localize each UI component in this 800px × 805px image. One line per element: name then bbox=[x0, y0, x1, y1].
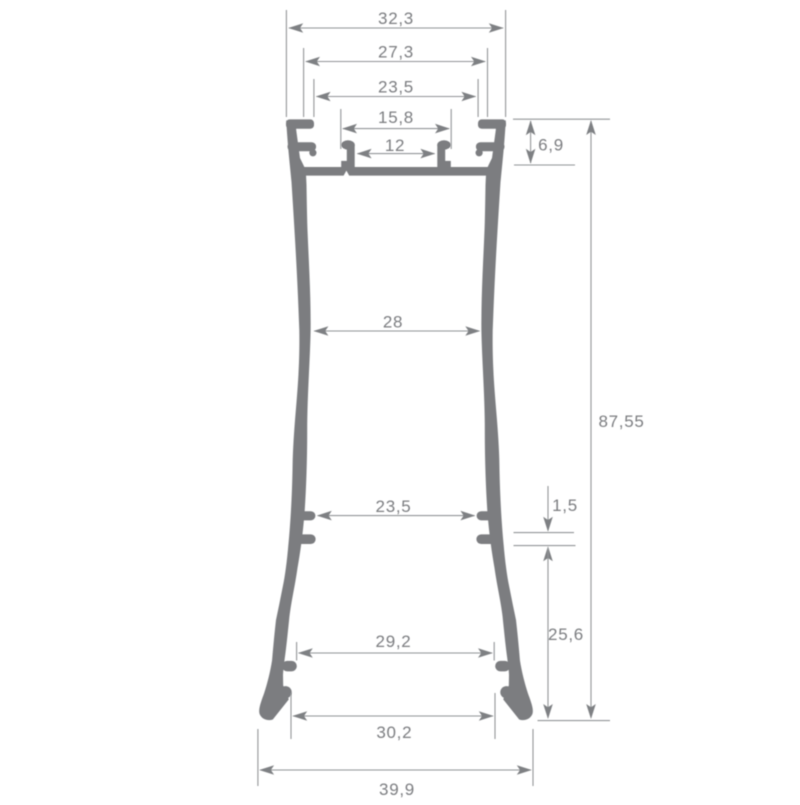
svg-text:15,8: 15,8 bbox=[378, 108, 414, 127]
svg-text:12: 12 bbox=[385, 136, 405, 155]
svg-text:28: 28 bbox=[383, 313, 403, 332]
svg-text:29,2: 29,2 bbox=[376, 632, 412, 651]
svg-text:32,3: 32,3 bbox=[378, 9, 414, 28]
svg-text:39,9: 39,9 bbox=[379, 780, 415, 799]
svg-text:27,3: 27,3 bbox=[378, 43, 414, 62]
svg-text:23,5: 23,5 bbox=[376, 497, 412, 516]
svg-text:1,5: 1,5 bbox=[552, 496, 578, 515]
svg-text:25,6: 25,6 bbox=[548, 625, 584, 644]
svg-text:87,55: 87,55 bbox=[598, 412, 644, 431]
svg-text:23,5: 23,5 bbox=[378, 77, 414, 96]
svg-text:30,2: 30,2 bbox=[376, 723, 412, 742]
svg-text:6,9: 6,9 bbox=[538, 136, 564, 155]
